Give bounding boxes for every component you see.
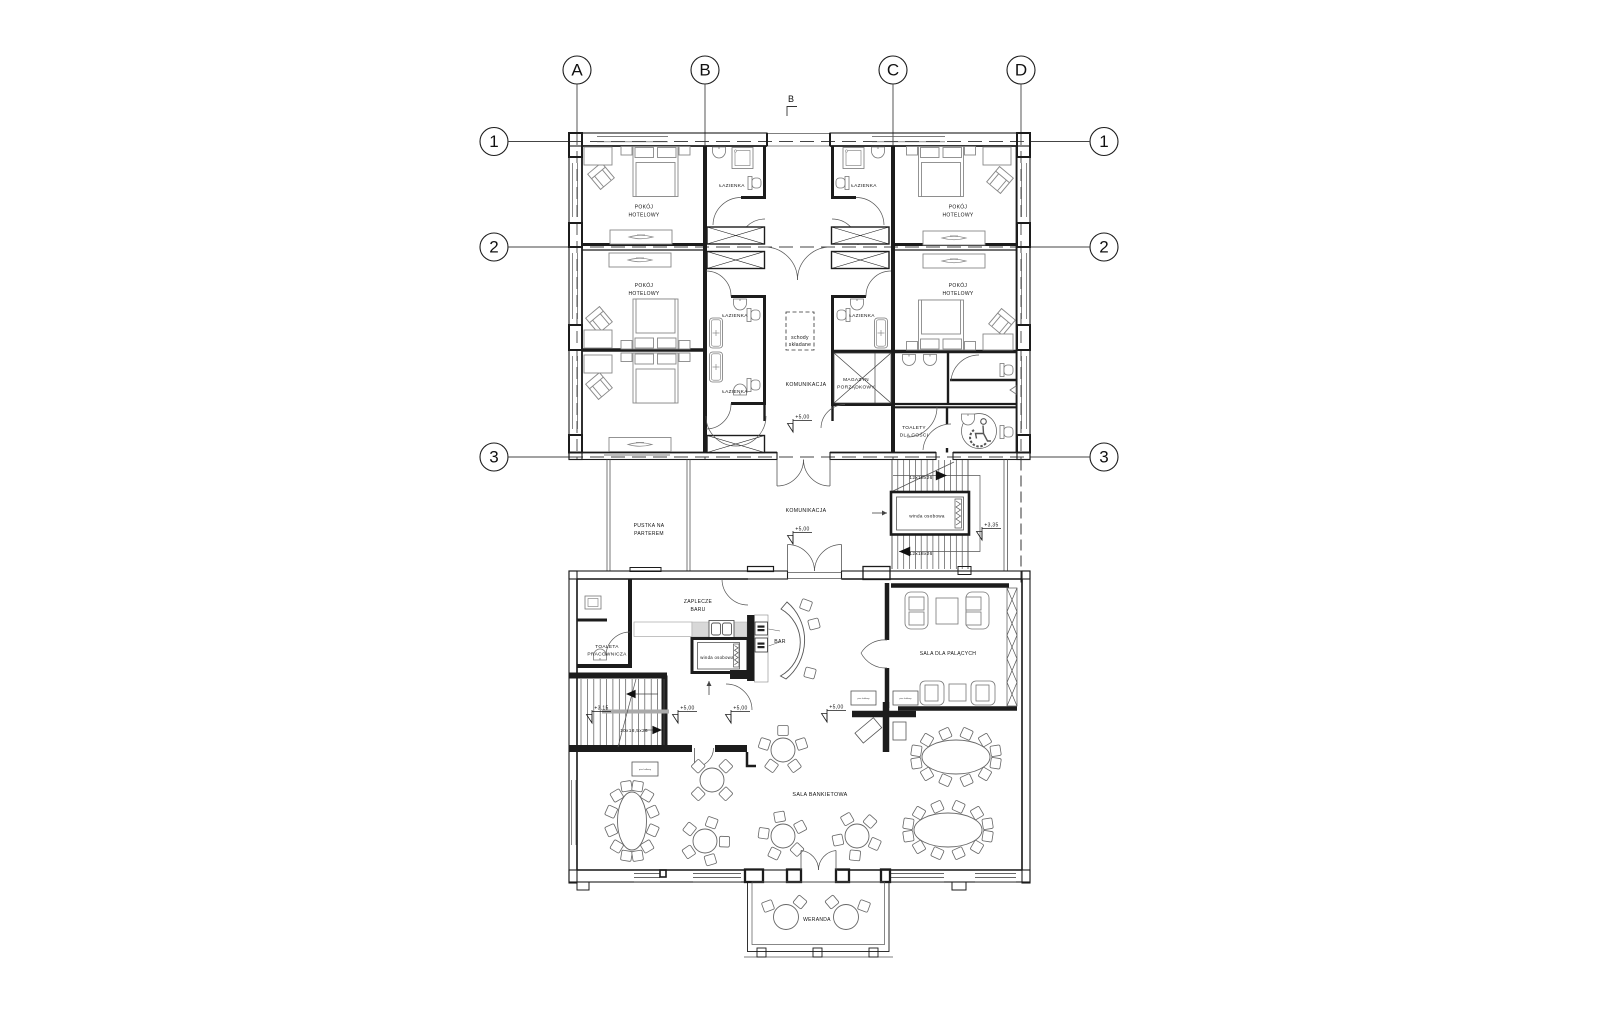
svg-text:2: 2	[489, 238, 498, 257]
svg-text:POKÓJ: POKÓJ	[949, 282, 968, 289]
svg-text:12x18x26: 12x18x26	[909, 551, 932, 557]
svg-text:3: 3	[489, 448, 498, 467]
svg-text:SALA BANKIETOWA: SALA BANKIETOWA	[792, 792, 847, 798]
svg-text:POKÓJ: POKÓJ	[635, 204, 654, 211]
svg-text:KOMUNIKACJA: KOMUNIKACJA	[786, 382, 827, 388]
svg-text:PARTEREM: PARTEREM	[634, 531, 664, 537]
svg-text:B: B	[788, 94, 794, 104]
svg-text:składane: składane	[789, 342, 811, 348]
svg-text:SALA DLA PALĄCYCH: SALA DLA PALĄCYCH	[920, 651, 977, 657]
svg-text:HOTELOWY: HOTELOWY	[628, 213, 659, 219]
svg-text:KOMUNIKACJA: KOMUNIKACJA	[786, 508, 827, 514]
svg-text:schody: schody	[791, 335, 809, 341]
svg-text:MAGAZYN: MAGAZYN	[843, 377, 869, 383]
svg-text:12x18x26: 12x18x26	[909, 475, 932, 481]
svg-text:winda osobowa: winda osobowa	[700, 655, 734, 660]
svg-text:ŁAZIENKA: ŁAZIENKA	[851, 183, 877, 189]
svg-text:HOTELOWY: HOTELOWY	[942, 213, 973, 219]
svg-text:+5,00: +5,00	[795, 415, 809, 421]
svg-text:PORZĄDKOWY: PORZĄDKOWY	[837, 385, 875, 391]
svg-text:piec kaflowy: piec kaflowy	[900, 698, 913, 700]
svg-text:PUSTKA NA: PUSTKA NA	[634, 523, 665, 529]
svg-text:BAR: BAR	[774, 639, 786, 645]
svg-text:3: 3	[1099, 448, 1108, 467]
svg-text:POKÓJ: POKÓJ	[949, 204, 968, 211]
svg-text:ŁAZIENKA: ŁAZIENKA	[719, 183, 745, 189]
svg-text:ZAPLECZE: ZAPLECZE	[684, 599, 713, 605]
svg-text:D: D	[1015, 61, 1027, 80]
svg-text:HOTELOWY: HOTELOWY	[942, 291, 973, 297]
svg-text:1: 1	[1099, 132, 1108, 151]
svg-text:winda osobowa: winda osobowa	[909, 514, 945, 519]
svg-text:PRACOWNICZA: PRACOWNICZA	[587, 652, 627, 658]
svg-text:+5,00: +5,00	[733, 706, 747, 712]
svg-text:ŁAZIENKA: ŁAZIENKA	[722, 313, 748, 319]
svg-text:+5,00: +5,00	[795, 527, 809, 533]
svg-text:piec kaflowy: piec kaflowy	[639, 769, 652, 771]
svg-text:WERANDA: WERANDA	[803, 917, 831, 923]
svg-text:B: B	[699, 61, 710, 80]
svg-text:piec kaflowy: piec kaflowy	[858, 698, 871, 700]
svg-text:+3,15: +3,15	[594, 706, 608, 712]
svg-text:ŁAZIENKA: ŁAZIENKA	[722, 389, 748, 395]
svg-text:1: 1	[489, 132, 498, 151]
svg-text:C: C	[887, 61, 899, 80]
svg-text:ŁAZIENKA: ŁAZIENKA	[849, 313, 875, 319]
svg-text:TOALETY: TOALETY	[902, 425, 926, 431]
svg-text:A: A	[571, 61, 583, 80]
svg-text:+5,00: +5,00	[829, 705, 843, 711]
svg-text:2: 2	[1099, 238, 1108, 257]
svg-text:+3,35: +3,35	[984, 523, 998, 529]
svg-text:+5,00: +5,00	[680, 706, 694, 712]
svg-text:BARU: BARU	[690, 607, 705, 613]
svg-text:HOTELOWY: HOTELOWY	[628, 291, 659, 297]
svg-text:10x18,5x26: 10x18,5x26	[620, 728, 648, 734]
svg-text:TOALETA: TOALETA	[595, 644, 619, 650]
svg-text:POKÓJ: POKÓJ	[635, 282, 654, 289]
